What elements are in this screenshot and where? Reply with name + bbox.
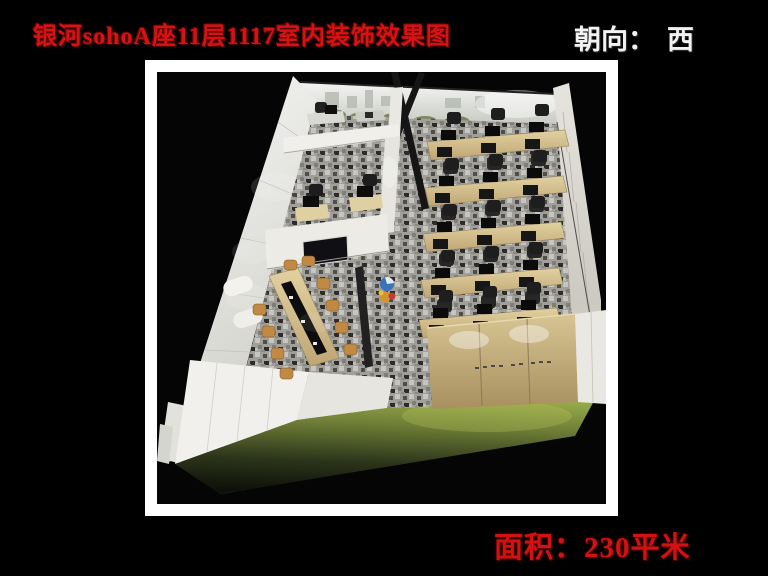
orientation-key: 朝向： — [574, 25, 655, 55]
rendering-frame — [145, 60, 618, 516]
orientation-label: 朝向：西 — [574, 18, 694, 57]
area-key: 面积： — [494, 532, 584, 564]
area-label: 面积：230平米 — [494, 524, 691, 566]
office-rendering-3d — [157, 72, 606, 504]
orientation-value: 西 — [667, 25, 694, 55]
area-value: 230平米 — [584, 532, 691, 564]
page-title: 银河sohoA座11层1117室内装饰效果图 — [33, 16, 451, 51]
